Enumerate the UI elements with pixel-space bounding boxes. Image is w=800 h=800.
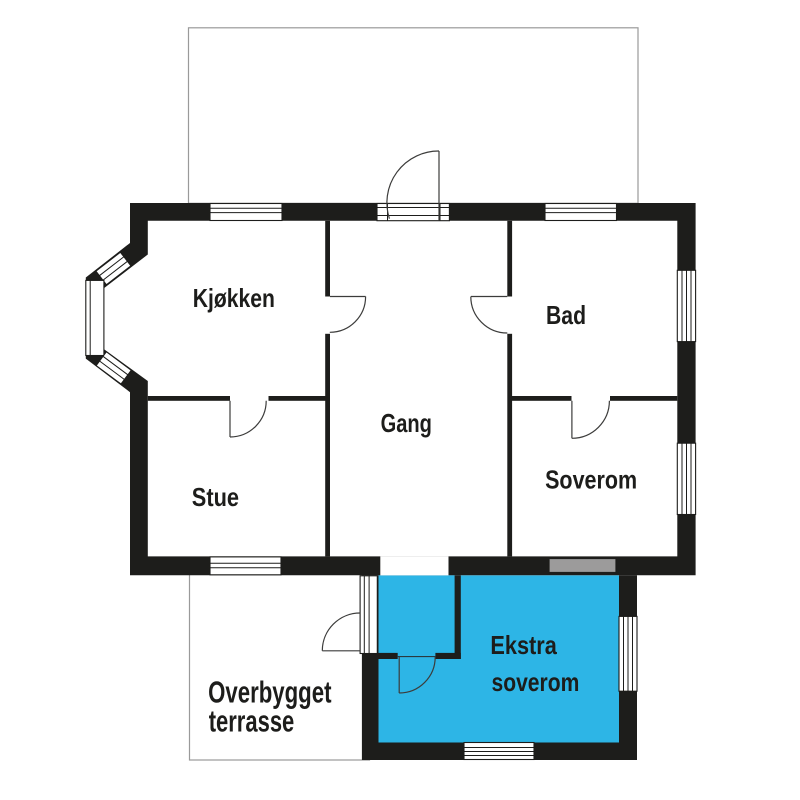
svg-text:terrasse: terrasse [209,703,295,738]
svg-text:Ekstra: Ekstra [490,630,557,660]
svg-text:Gang: Gang [381,408,432,438]
svg-text:Kjøkken: Kjøkken [193,283,275,313]
svg-text:Stue: Stue [192,482,239,512]
svg-text:soverom: soverom [492,667,580,697]
svg-text:Bad: Bad [546,300,586,330]
svg-text:Soverom: Soverom [545,465,637,495]
